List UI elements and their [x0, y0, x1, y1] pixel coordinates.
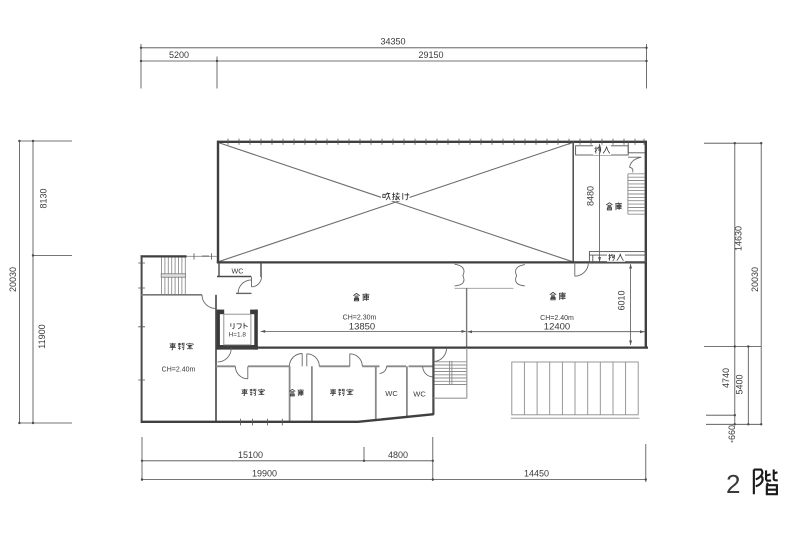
svg-text:34350: 34350 [380, 37, 405, 47]
svg-text:4800: 4800 [388, 450, 408, 460]
svg-text:15100: 15100 [238, 450, 263, 460]
svg-text:11900: 11900 [37, 324, 47, 348]
svg-text:6010: 6010 [616, 290, 626, 310]
svg-text:5200: 5200 [169, 50, 189, 60]
svg-text:13850: 13850 [349, 321, 375, 332]
svg-text:4740: 4740 [721, 368, 731, 388]
svg-text:CH=2.40m: CH=2.40m [162, 367, 196, 374]
svg-text:29150: 29150 [418, 50, 443, 60]
svg-text:660: 660 [727, 425, 737, 440]
svg-text:5400: 5400 [735, 374, 745, 394]
svg-text:WC: WC [413, 389, 426, 398]
svg-text:14450: 14450 [524, 468, 549, 478]
svg-text:20030: 20030 [750, 267, 760, 292]
svg-text:12400: 12400 [544, 322, 570, 333]
svg-text:WC: WC [232, 266, 244, 275]
svg-text:19900: 19900 [252, 468, 277, 478]
svg-text:8480: 8480 [585, 186, 595, 206]
svg-text:H=1.8: H=1.8 [229, 332, 247, 339]
svg-text:8130: 8130 [39, 188, 49, 208]
svg-text:20030: 20030 [8, 267, 18, 292]
svg-text:WC: WC [385, 389, 398, 398]
svg-text:2: 2 [726, 469, 740, 499]
svg-text:14630: 14630 [734, 226, 744, 251]
